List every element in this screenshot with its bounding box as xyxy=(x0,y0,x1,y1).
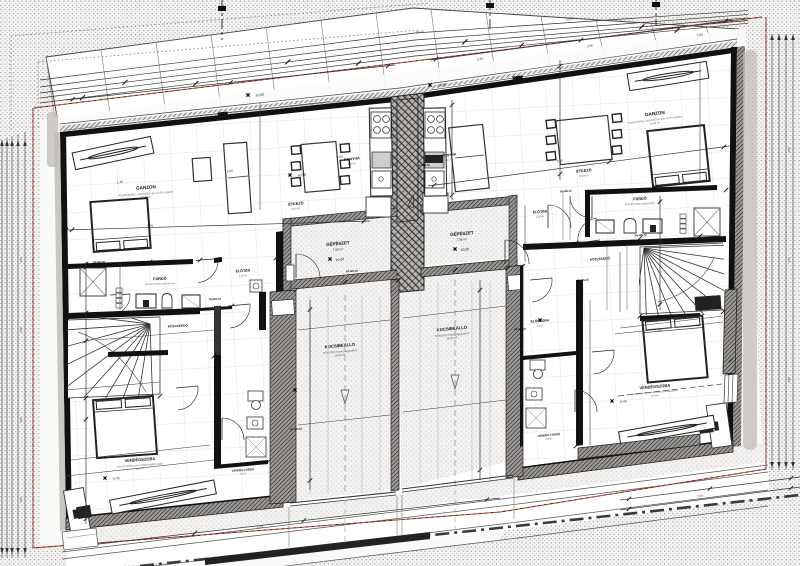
svg-text:4,50: 4,50 xyxy=(19,327,23,333)
svg-text:4,20 m²: 4,20 m² xyxy=(536,215,545,218)
svg-text:16,57: 16,57 xyxy=(566,17,575,22)
svg-text:2,96: 2,96 xyxy=(587,44,594,49)
svg-text:3,75: 3,75 xyxy=(147,224,154,228)
svg-text:4,62: 4,62 xyxy=(657,328,663,333)
svg-text:±0,00: ±0,00 xyxy=(461,247,470,252)
svg-text:4,50: 4,50 xyxy=(787,377,791,383)
svg-text:-0,45: -0,45 xyxy=(619,399,627,404)
svg-text:4,50: 4,50 xyxy=(787,257,791,263)
svg-text:±0,00: ±0,00 xyxy=(336,257,345,262)
svg-text:RF-BN-02: RF-BN-02 xyxy=(93,260,106,265)
svg-text:4,3 m²: 4,3 m² xyxy=(239,472,246,475)
svg-text:4,50: 4,50 xyxy=(19,257,23,263)
svg-text:2,90: 2,90 xyxy=(337,155,344,160)
svg-text:3,47: 3,47 xyxy=(669,317,675,322)
svg-text:4,20 m²: 4,20 m² xyxy=(239,274,248,277)
svg-text:4,50: 4,50 xyxy=(787,147,791,153)
svg-text:FÜRDŐ: FÜRDŐ xyxy=(153,276,167,281)
svg-text:ELŐTÉR: ELŐTÉR xyxy=(236,268,251,274)
svg-text:4,50: 4,50 xyxy=(19,417,23,423)
svg-text:4,50: 4,50 xyxy=(19,497,23,503)
svg-text:3,2 m²: 3,2 m² xyxy=(536,324,543,327)
svg-text:8,50 m²: 8,50 m² xyxy=(291,206,300,211)
svg-text:4,3 m²: 4,3 m² xyxy=(545,437,552,441)
svg-text:1,10: 1,10 xyxy=(117,180,124,185)
svg-text:7,60: 7,60 xyxy=(697,33,704,38)
svg-text:3,30: 3,30 xyxy=(477,57,484,62)
svg-text:ELŐTÉR: ELŐTÉR xyxy=(533,209,548,215)
svg-text:RF-BN-02: RF-BN-02 xyxy=(209,297,222,302)
svg-text:6,00: 6,00 xyxy=(257,525,264,530)
svg-text:FÜRDŐ: FÜRDŐ xyxy=(633,196,647,202)
svg-text:7,56: 7,56 xyxy=(697,494,704,499)
svg-text:5,90: 5,90 xyxy=(227,169,234,174)
svg-text:-0,45: -0,45 xyxy=(112,476,120,481)
